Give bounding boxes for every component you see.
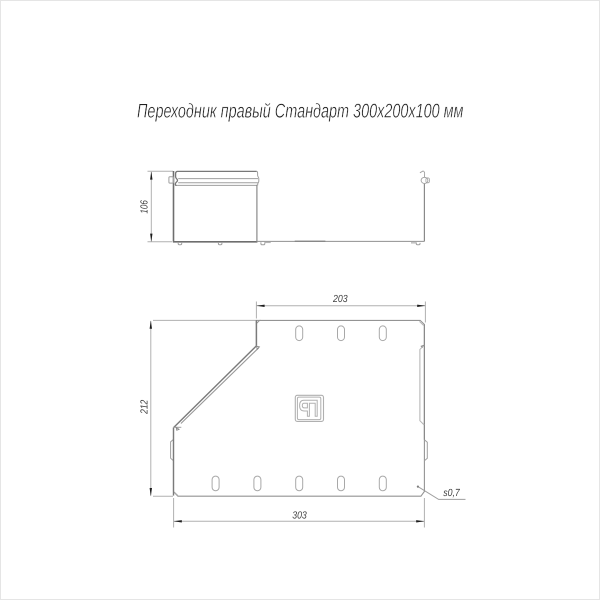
svg-text:Переходник правый Стандарт 300: Переходник правый Стандарт 300х200х100 м… <box>137 101 464 123</box>
svg-text:s0,7: s0,7 <box>443 488 461 499</box>
svg-text:106: 106 <box>140 200 151 214</box>
svg-text:303: 303 <box>292 510 307 521</box>
svg-text:212: 212 <box>140 400 151 415</box>
svg-text:203: 203 <box>332 294 348 305</box>
